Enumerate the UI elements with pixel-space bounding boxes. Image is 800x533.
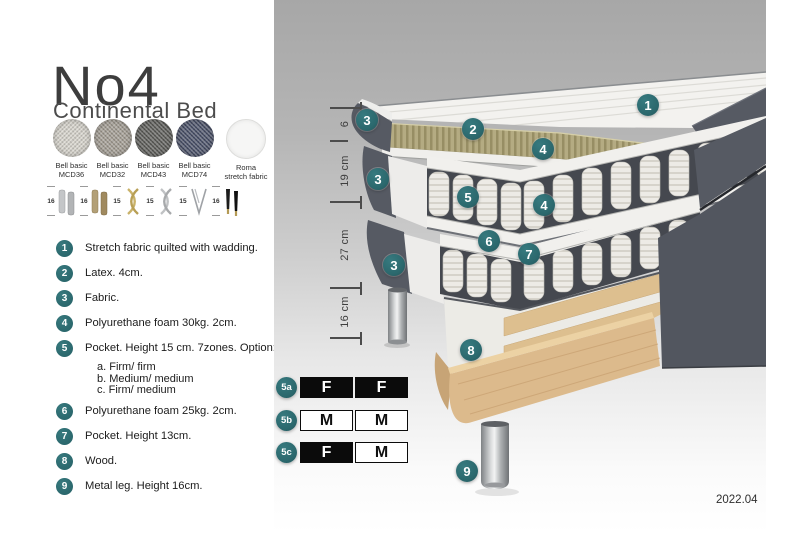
- firmness-row-5a: 5a F F: [276, 377, 408, 398]
- firmness-row-5c: 5c F M: [276, 442, 408, 463]
- firmness-row-badge: 5c: [276, 442, 297, 463]
- leg-option-hairpin: 15: [178, 186, 211, 216]
- leg-option-twisted-gold: 15: [112, 186, 145, 216]
- fabric-swatch-circle: [53, 119, 91, 157]
- swatch-roma-stretch: Romastretch fabric: [220, 119, 272, 182]
- spec-number-badge: 4: [56, 315, 73, 332]
- dimension-label-top-pad: 6: [339, 121, 351, 127]
- spec-number-badge: 5: [56, 340, 73, 357]
- leg-option-cylinder-silver: 16: [46, 186, 79, 216]
- spec-list: 1 Stretch fabric quilted with wadding. 2…: [56, 240, 270, 503]
- firmness-row-badge: 5b: [276, 410, 297, 431]
- swatch-bell-basic-mcd74: Bell basicMCD74: [174, 119, 215, 182]
- spec-item-3: 3 Fabric.: [56, 290, 270, 307]
- marker-3-top: 3: [356, 109, 378, 131]
- swatch-bell-basic-mcd36: Bell basicMCD36: [51, 119, 92, 182]
- dimension-label-middle: 19 cm: [339, 155, 351, 186]
- marker-9: 9: [456, 460, 478, 482]
- firmness-row-badge: 5a: [276, 377, 297, 398]
- marker-6: 6: [478, 230, 500, 252]
- spec-number-badge: 3: [56, 290, 73, 307]
- spec-item-2: 2 Latex. 4cm.: [56, 265, 270, 282]
- leg-icon-tapered-black-gold: [221, 186, 243, 216]
- version-stamp: 2022.04: [716, 494, 758, 506]
- leg-options-row: 16 16 15 15: [46, 186, 244, 216]
- spec-number-badge: 2: [56, 265, 73, 282]
- leg-icon-cylinder-silver: [56, 186, 78, 216]
- firmness-cell: F: [355, 377, 408, 398]
- fabric-swatch-circle: [176, 119, 214, 157]
- spec-item-7: 7 Pocket. Height 13cm.: [56, 428, 270, 445]
- fabric-swatch-circle: [94, 119, 132, 157]
- leg-icon-hairpin: [188, 186, 210, 216]
- leg-icon-twisted-silver: [155, 186, 177, 216]
- fabric-swatch-circle: [135, 119, 173, 157]
- spec-item-8: 8 Wood.: [56, 453, 270, 470]
- swatch-bell-basic-mcd32: Bell basicMCD32: [92, 119, 133, 182]
- spec-number-badge: 7: [56, 428, 73, 445]
- marker-7: 7: [518, 243, 540, 265]
- marker-5: 5: [457, 186, 479, 208]
- leg-option-tapered-black-gold: 16: [211, 186, 244, 216]
- leg-option-twisted-silver: 15: [145, 186, 178, 216]
- fabric-swatch-row: Bell basicMCD36 Bell basicMCD32 Bell bas…: [51, 119, 272, 182]
- firmness-cell: M: [300, 410, 353, 431]
- marker-1: 1: [637, 94, 659, 116]
- firmness-cell: F: [300, 377, 353, 398]
- fabric-swatch-circle: [226, 119, 266, 159]
- spec-number-badge: 1: [56, 240, 73, 257]
- spec-item-1: 1 Stretch fabric quilted with wadding.: [56, 240, 270, 257]
- marker-3-base: 3: [383, 254, 405, 276]
- leg-icon-twisted-gold: [122, 186, 144, 216]
- spec-item-5-options: a. Firm/ firm b. Medium/ medium c. Firm/…: [97, 362, 270, 397]
- leg-option-cylinder-brass: 16: [79, 186, 112, 216]
- marker-3-middle: 3: [367, 168, 389, 190]
- spec-number-badge: 8: [56, 453, 73, 470]
- spec-number-badge: 9: [56, 478, 73, 495]
- marker-4-lower: 4: [533, 194, 555, 216]
- spec-item-4: 4 Polyurethane foam 30kg. 2cm.: [56, 315, 270, 332]
- infographic-page: No4 Continental Bed Bell basicMCD36 Bell…: [0, 0, 800, 533]
- marker-4-upper: 4: [532, 138, 554, 160]
- leg-icon-cylinder-brass: [89, 186, 111, 216]
- dimension-label-leg: 16 cm: [339, 296, 351, 327]
- firmness-cell: M: [355, 410, 408, 431]
- bed-diagram-panel: 6 19 cm 27 cm 16 cm 1 2 3 3 3 4 4 5 6 7 …: [274, 0, 766, 533]
- dimension-label-base: 27 cm: [339, 229, 351, 260]
- metal-leg-front: [481, 424, 509, 489]
- firmness-row-5b: 5b M M: [276, 410, 408, 431]
- marker-2: 2: [462, 118, 484, 140]
- spec-item-9: 9 Metal leg. Height 16cm.: [56, 478, 270, 495]
- metal-leg-back: [388, 290, 407, 342]
- firmness-cell: F: [300, 442, 353, 463]
- spec-item-6: 6 Polyurethane foam 25kg. 2cm.: [56, 403, 270, 420]
- marker-8: 8: [460, 339, 482, 361]
- firmness-cell: M: [355, 442, 408, 463]
- spec-item-5: 5 Pocket. Height 15 cm. 7zones. Option:: [56, 340, 270, 357]
- swatch-bell-basic-mcd43: Bell basicMCD43: [133, 119, 174, 182]
- info-panel: No4 Continental Bed Bell basicMCD36 Bell…: [0, 0, 274, 533]
- spec-number-badge: 6: [56, 403, 73, 420]
